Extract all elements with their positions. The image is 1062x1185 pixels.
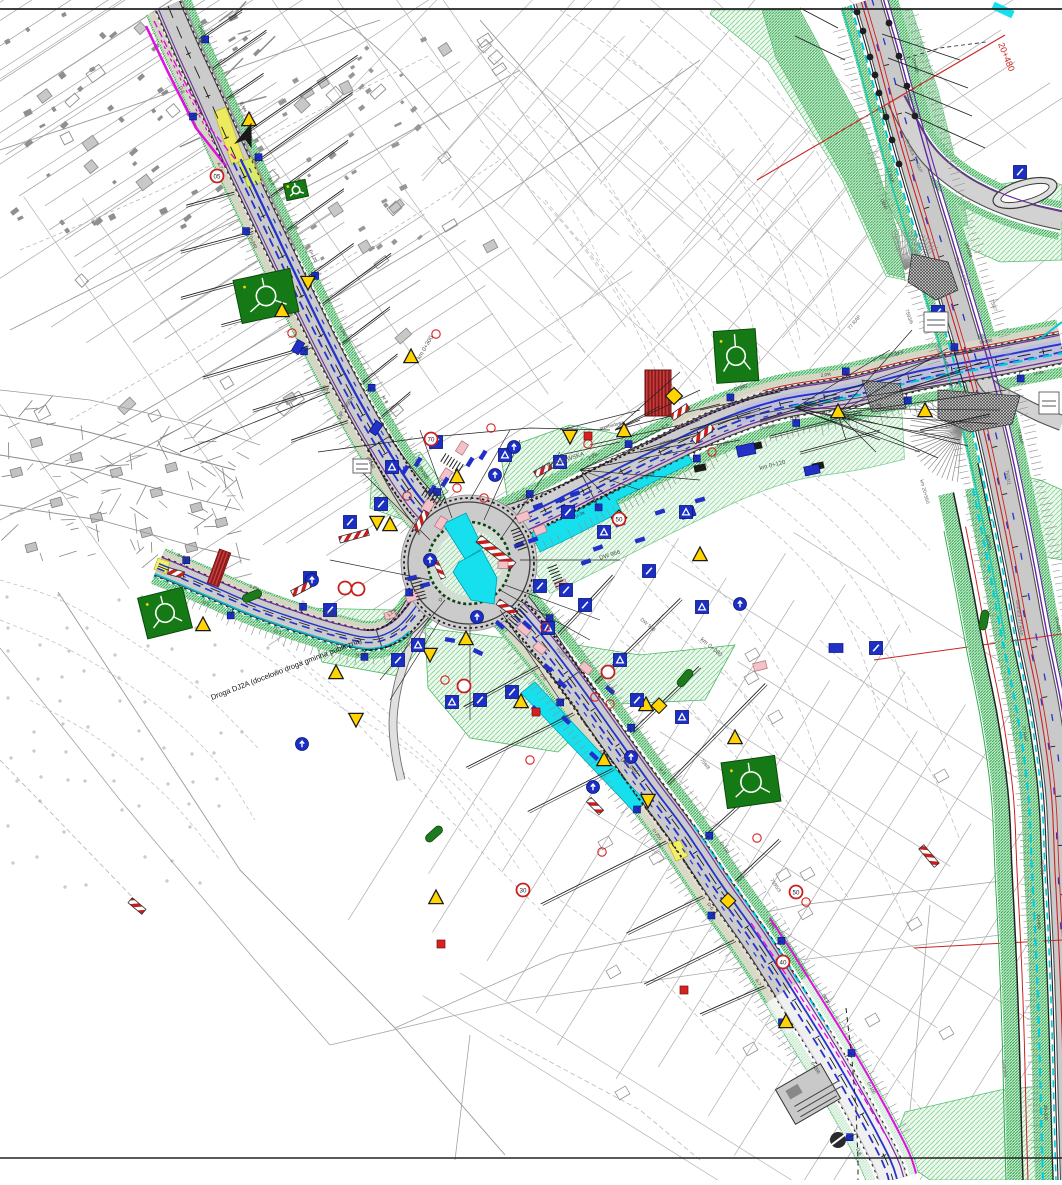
svg-text:759/11: 759/11 (1038, 860, 1045, 876)
svg-text:20+500: 20+500 (1043, 1105, 1049, 1121)
svg-text:50: 50 (793, 889, 800, 896)
svg-text:30: 30 (520, 887, 527, 894)
svg-text:U-5: U-5 (356, 652, 364, 658)
svg-text:05: 05 (214, 173, 221, 180)
svg-text:40: 40 (780, 959, 787, 966)
svg-text:50: 50 (616, 516, 623, 523)
svg-text:20+450: 20+450 (1036, 914, 1042, 930)
svg-text:70: 70 (428, 436, 435, 443)
